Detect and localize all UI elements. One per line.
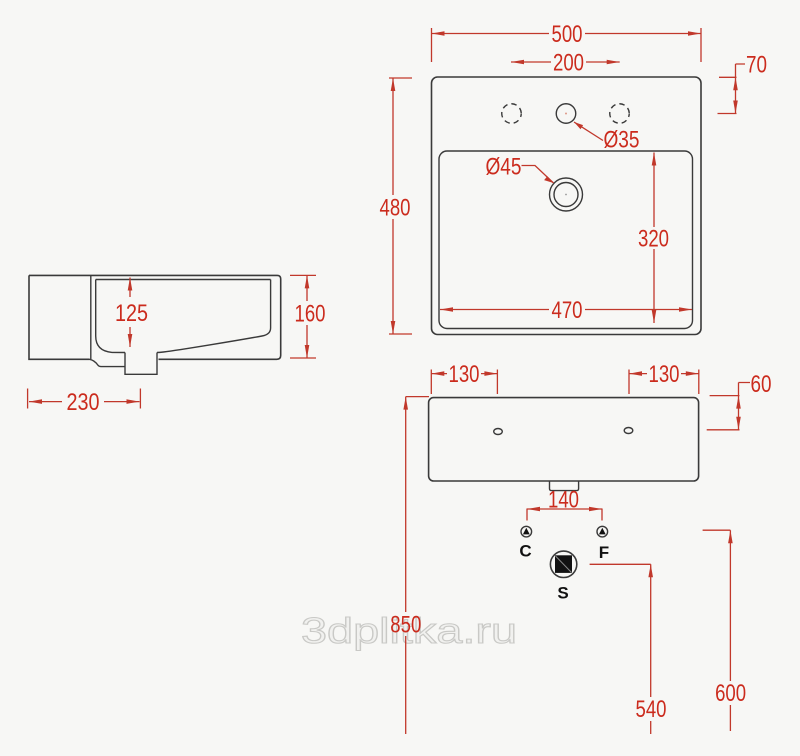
svg-text:200: 200 (553, 50, 584, 77)
svg-text:230: 230 (67, 389, 100, 416)
svg-text:125: 125 (115, 300, 148, 327)
svg-text:130: 130 (449, 361, 480, 388)
svg-text:F: F (599, 543, 609, 562)
svg-text:470: 470 (552, 297, 583, 324)
svg-text:480: 480 (380, 195, 411, 222)
svg-text:600: 600 (715, 680, 746, 707)
svg-text:60: 60 (751, 371, 772, 398)
svg-text:500: 500 (552, 21, 583, 48)
svg-text:C: C (519, 542, 531, 561)
svg-text:Ø45: Ø45 (486, 154, 522, 181)
svg-text:320: 320 (638, 226, 669, 253)
svg-text:160: 160 (295, 301, 326, 328)
svg-text:130: 130 (649, 361, 680, 388)
svg-text:Ø35: Ø35 (604, 127, 640, 154)
svg-text:850: 850 (390, 612, 421, 639)
svg-text:S: S (557, 584, 568, 603)
svg-text:140: 140 (548, 487, 579, 514)
svg-text:70: 70 (746, 52, 767, 79)
svg-text:540: 540 (636, 696, 667, 723)
